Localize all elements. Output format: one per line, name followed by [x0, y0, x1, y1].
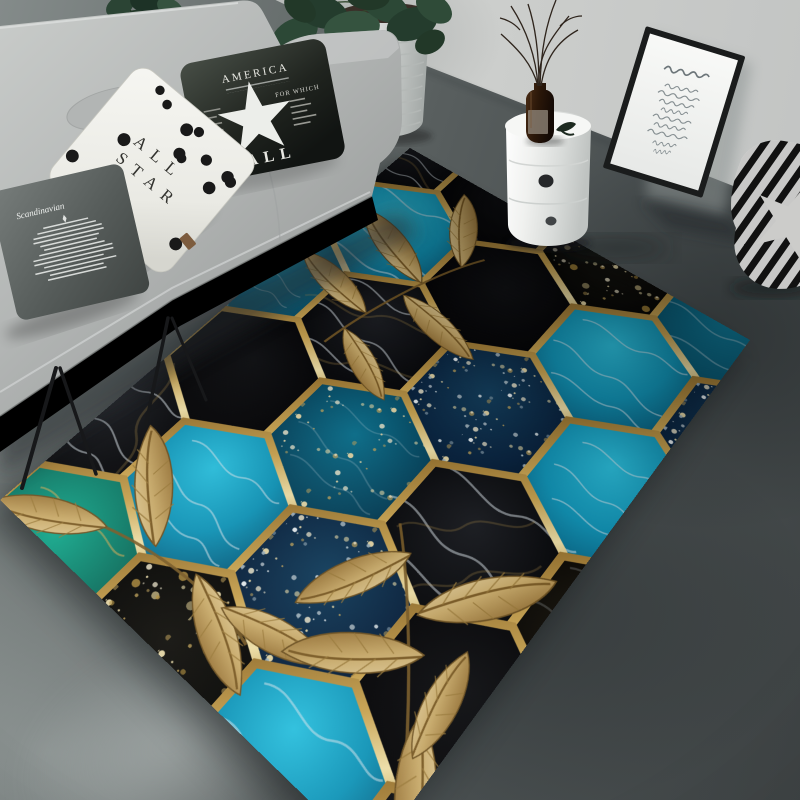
table-hole — [539, 175, 554, 188]
striped-pillow-shading — [731, 140, 800, 289]
photo-stage: AMERICA FOR WHICH ALL ALL STAR Scandinav… — [0, 0, 800, 800]
dried-twigs — [500, 0, 582, 86]
table-hole-lower — [546, 217, 557, 226]
room-scene: AMERICA FOR WHICH ALL ALL STAR Scandinav… — [0, 0, 800, 800]
